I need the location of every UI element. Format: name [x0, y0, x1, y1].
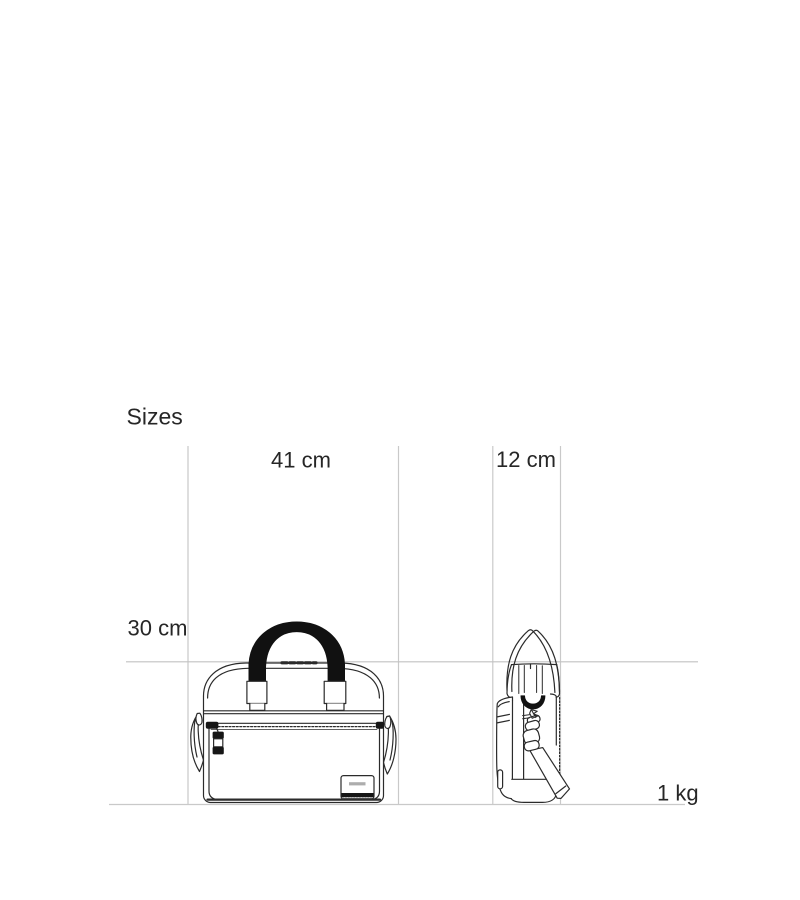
- svg-text:41 cm: 41 cm: [271, 448, 331, 473]
- svg-text:12 cm: 12 cm: [496, 447, 556, 472]
- svg-text:Sizes: Sizes: [127, 404, 183, 430]
- svg-text:30 cm: 30 cm: [128, 616, 188, 641]
- svg-text:1 kg: 1 kg: [657, 781, 699, 806]
